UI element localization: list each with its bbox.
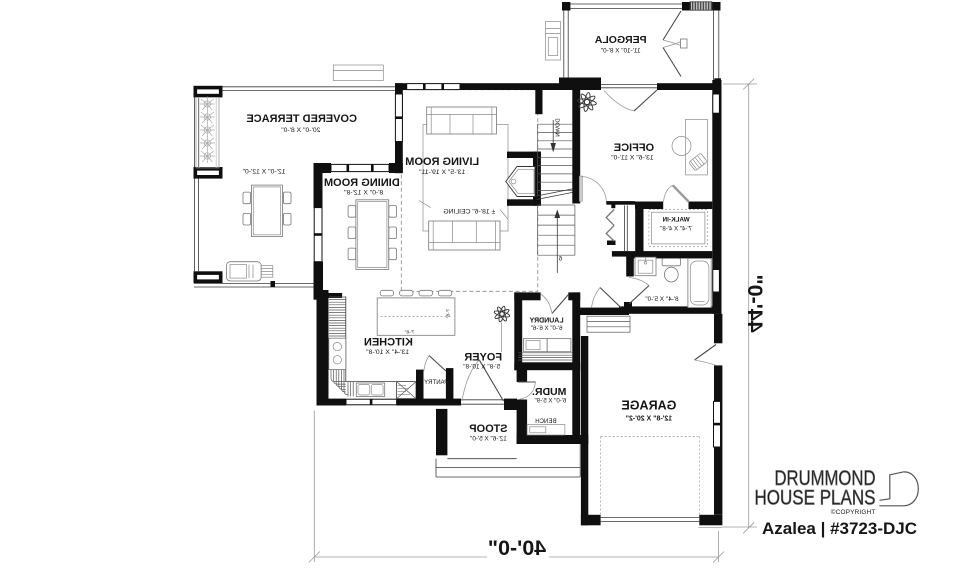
svg-text:7'-8": 7'-8"	[404, 330, 414, 336]
svg-text:13'-5" X 19'-11": 13'-5" X 19'-11"	[419, 169, 466, 176]
svg-text:12'-6" X 5'-0": 12'-6" X 5'-0"	[470, 436, 507, 443]
svg-text:8'-0" X 12'-8": 8'-0" X 12'-8"	[344, 190, 384, 197]
svg-text:COVERED TERRACE: COVERED TERRACE	[246, 113, 357, 125]
svg-text:6'-0" X 5'-9": 6'-0" X 5'-9"	[535, 397, 567, 404]
svg-text:STOOP: STOOP	[469, 423, 507, 435]
svg-text:WALK-IN: WALK-IN	[662, 217, 689, 224]
svg-text:KITCHEN: KITCHEN	[364, 337, 413, 349]
svg-text:FOYER: FOYER	[464, 351, 502, 363]
svg-text:HOUSE PLANS: HOUSE PLANS	[755, 487, 876, 510]
svg-text:©COPYRIGHT: ©COPYRIGHT	[831, 508, 876, 516]
svg-text:7'-8": 7'-8"	[446, 309, 452, 319]
svg-text:13'-6" X 11'-0": 13'-6" X 11'-0"	[611, 155, 654, 162]
svg-text:DOWN: DOWN	[556, 118, 562, 136]
svg-text:13'-4" X 10'-8": 13'-4" X 10'-8"	[366, 349, 410, 356]
svg-text:PANTRY: PANTRY	[424, 379, 448, 386]
svg-text:6'-0" X 6'-6": 6'-0" X 6'-6"	[531, 325, 563, 332]
svg-text:PERGOLA: PERGOLA	[594, 34, 646, 46]
svg-text:Azalea | #3723-DJC: Azalea | #3723-DJC	[762, 519, 917, 538]
svg-text:6: 6	[558, 257, 562, 263]
svg-text:LIVING ROOM: LIVING ROOM	[405, 156, 479, 168]
svg-text:± 18'-6" CEILING: ± 18'-6" CEILING	[443, 209, 495, 216]
svg-text:12'-0" X 12'-0": 12'-0" X 12'-0"	[242, 169, 286, 176]
svg-text:GARAGE: GARAGE	[621, 399, 676, 413]
svg-text:12'-8" X 20'-2": 12'-8" X 20'-2"	[626, 416, 673, 423]
svg-text:7'-4" X 4'-8": 7'-4" X 4'-8"	[660, 226, 692, 233]
svg-text:8'-4" X 5'-0": 8'-4" X 5'-0"	[645, 296, 678, 303]
svg-text:OFFICE: OFFICE	[614, 142, 654, 154]
svg-text:LAUNDRY: LAUNDRY	[529, 318, 563, 325]
svg-text:5'-8" X 10'-8": 5'-8" X 10'-8"	[463, 364, 500, 371]
svg-text:DINING ROOM: DINING ROOM	[324, 177, 400, 189]
svg-text:20'-0" X 8'-0": 20'-0" X 8'-0"	[281, 127, 321, 134]
svg-text:BENCH: BENCH	[535, 418, 556, 425]
svg-text:40'-0": 40'-0"	[488, 536, 546, 560]
svg-text:11'-10" X 8'-0": 11'-10" X 8'-0"	[601, 48, 641, 55]
svg-text:44'-0": 44'-0"	[743, 274, 767, 332]
